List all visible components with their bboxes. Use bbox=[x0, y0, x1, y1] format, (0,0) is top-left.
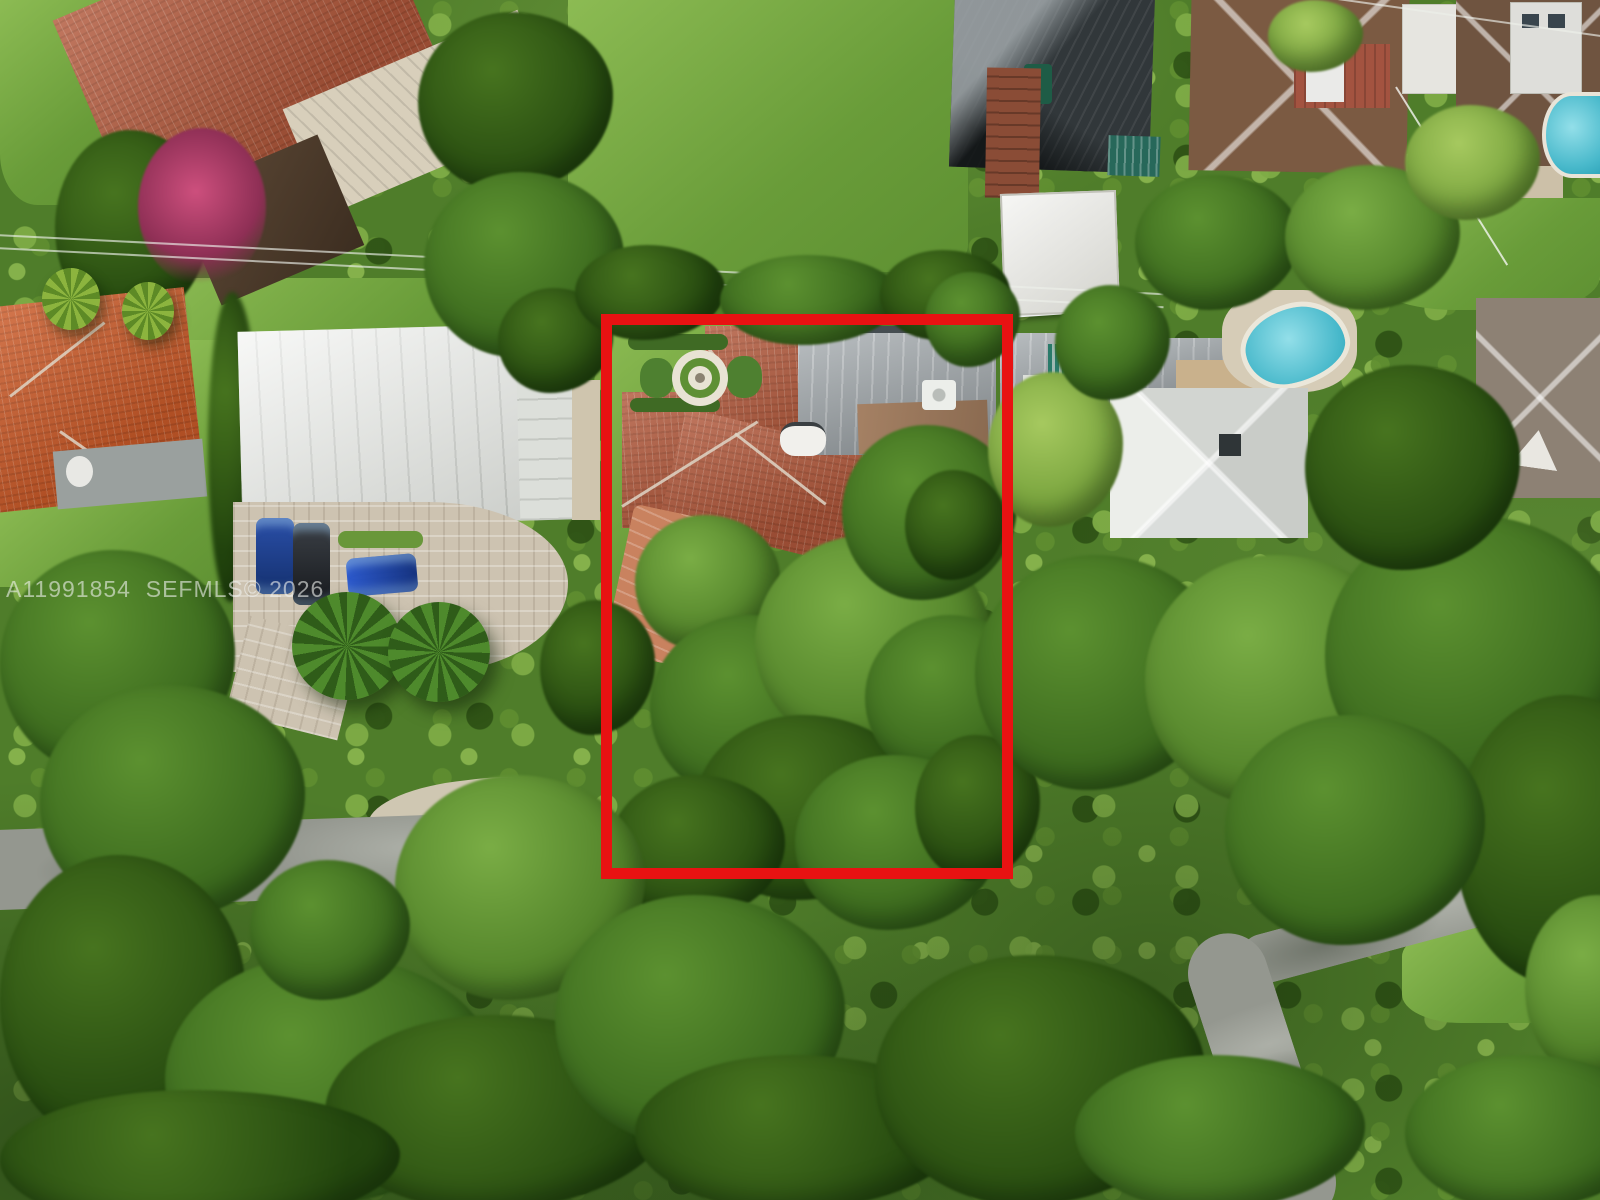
palm-tree bbox=[292, 592, 402, 700]
property-boundary-outline bbox=[601, 314, 1013, 879]
stone-path bbox=[572, 380, 600, 520]
palm-tree bbox=[42, 268, 100, 330]
white-flat-roof bbox=[1402, 4, 1462, 94]
orange-house-turret bbox=[66, 456, 93, 487]
corner-pool bbox=[1542, 92, 1600, 178]
mls-watermark: A11991854 SEFMLS© 2026 bbox=[6, 576, 324, 603]
tree-clump bbox=[1075, 1055, 1365, 1200]
aerial-photo: A11991854 SEFMLS© 2026 bbox=[0, 0, 1600, 1200]
palm-tree bbox=[388, 602, 490, 702]
white-cube-structure bbox=[1510, 2, 1582, 94]
wood-deck bbox=[985, 68, 1041, 199]
parked-car-blue-2 bbox=[345, 553, 418, 597]
palm-tree bbox=[122, 282, 174, 340]
center-lawn bbox=[568, 0, 968, 272]
screened-pool bbox=[1107, 135, 1160, 177]
window bbox=[1548, 14, 1565, 28]
driveway-grass-strip bbox=[338, 531, 423, 548]
white-hip-roof-house bbox=[1110, 388, 1308, 538]
bougainvillea-tree bbox=[138, 128, 266, 286]
chimney-dark bbox=[1219, 434, 1241, 456]
